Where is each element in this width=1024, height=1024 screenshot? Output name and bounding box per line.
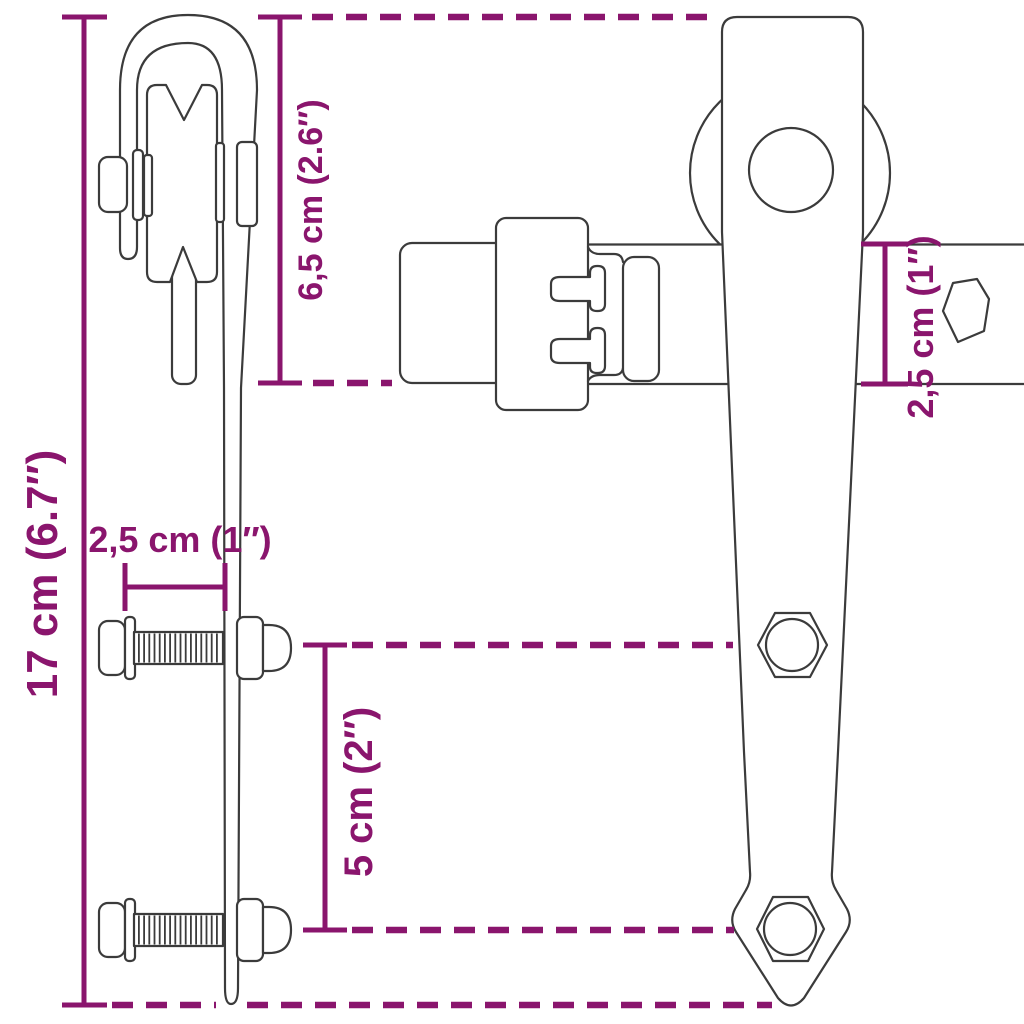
bolt-head: [99, 903, 125, 957]
axle-spacer-right: [216, 143, 224, 222]
dim-bolt-grip-length: [125, 563, 225, 611]
pulley-wheel-profile: [147, 85, 217, 282]
bolt-dome-cap: [263, 625, 291, 671]
dim-label-bolt-grip-length: 2,5 cm (1″): [88, 519, 271, 560]
bolt-dome-cap: [263, 907, 291, 953]
dim-label-total-height: 17 cm (6.7″): [18, 450, 67, 699]
axle-washer-outer: [133, 150, 143, 220]
diagram-canvas: 17 cm (6.7″) 6,5 cm (2.6″) 2,5 cm (1″) 5…: [0, 0, 1024, 1024]
axle-washer-inner: [144, 155, 152, 216]
wheel-axle-bolt: [749, 128, 833, 212]
bolt-nut-body: [237, 899, 263, 961]
dim-label-bolt-hole-spacing: 5 cm (2″): [337, 707, 381, 877]
mounting-bolt-lower: [99, 899, 291, 961]
dim-label-rail-height: 2,5 cm (1″): [900, 235, 941, 418]
bolt-shaft: [134, 632, 223, 664]
bolt-nut-body: [237, 617, 263, 679]
bolt-head: [99, 621, 125, 675]
bolt-shaft: [134, 914, 223, 946]
hex-nut-lower: [757, 897, 824, 961]
dim-label-hanger-top-height: 6,5 cm (2.6″): [292, 99, 330, 301]
axle-bolt-head: [99, 157, 127, 212]
axle-washer-right: [237, 142, 257, 226]
hardware-dimension-diagram: 17 cm (6.7″) 6,5 cm (2.6″) 2,5 cm (1″) 5…: [0, 0, 1024, 1024]
mounting-bolt-upper: [99, 617, 291, 679]
